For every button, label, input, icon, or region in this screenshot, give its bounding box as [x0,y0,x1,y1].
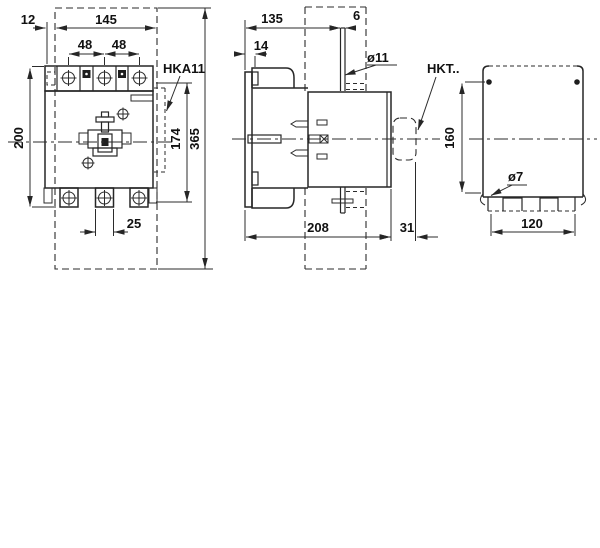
dim-hole-width: 120 [521,216,543,231]
dim-depth-to-bracket: 135 [261,11,283,26]
background [0,0,600,548]
dim-width: 145 [95,12,117,27]
dim-body-height: 200 [11,127,26,149]
mounting-hole-right [574,79,580,85]
contactor-dimension-drawing: 12 145 48 48 200 174 365 25 [0,0,600,548]
label-interlock: HKT.. [427,61,460,76]
dim-total-depth: 208 [307,220,329,235]
dim-terminal-width: 25 [127,216,141,231]
dim-offset-left: 12 [21,12,35,27]
dim-hole-height: 160 [442,127,457,149]
dim-pole-pitch-1: 48 [78,37,92,52]
dim-front-depth: 14 [254,38,269,53]
dim-interlock-depth: 31 [400,220,414,235]
dim-bracket-hole: ø11 [367,50,389,65]
dim-total-height: 365 [187,128,202,150]
dim-bracket-thickness: 6 [353,8,360,23]
dim-mounting-hole: ø7 [508,169,523,184]
label-aux-block: HKA11 [163,61,205,76]
dim-pole-pitch-2: 48 [112,37,126,52]
mounting-hole-left [486,79,492,85]
drawing-page: 12 145 48 48 200 174 365 25 [0,0,600,548]
dim-aux-height: 174 [168,127,183,149]
